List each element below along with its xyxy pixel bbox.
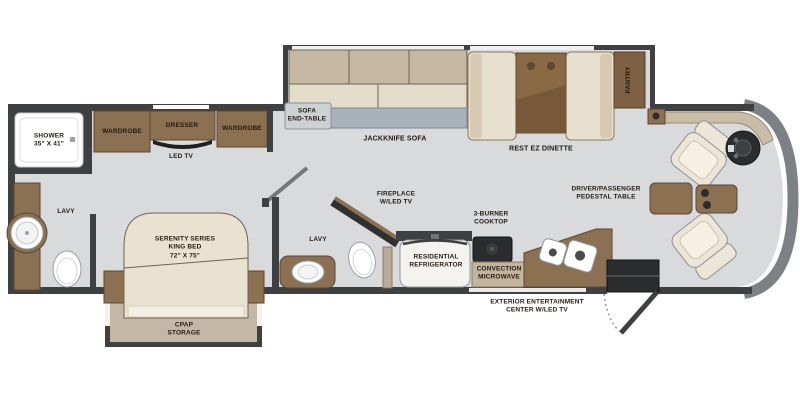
dinette-bench-left-back bbox=[470, 54, 482, 138]
shower-drain bbox=[70, 137, 75, 142]
window-over-dresser bbox=[153, 105, 209, 109]
refrigerator-hinge bbox=[431, 234, 439, 239]
wall-stub-wardrobe bbox=[267, 111, 273, 152]
jackknife-sofa-back bbox=[289, 50, 467, 84]
steering-column-mark bbox=[728, 145, 734, 152]
steering-spoke-1 bbox=[734, 138, 739, 143]
dinette-bench-right-back bbox=[600, 54, 612, 138]
pedestal-table-right bbox=[696, 185, 737, 213]
slideout-top-window-left bbox=[292, 46, 464, 50]
nightstand-right bbox=[246, 271, 264, 303]
wardrobe-left bbox=[94, 111, 150, 152]
floorplan-drawing bbox=[0, 0, 800, 400]
pedestal-table-left bbox=[650, 183, 692, 214]
kitchen-end-panel bbox=[383, 247, 392, 288]
exterior-entertainment-wall-marker bbox=[469, 288, 586, 292]
slideout-top-window-right bbox=[470, 46, 594, 50]
steering-spoke-2 bbox=[734, 154, 739, 159]
refrigerator bbox=[400, 240, 470, 287]
king-bed bbox=[124, 213, 248, 318]
dinette-table-dot-1 bbox=[527, 62, 535, 70]
sofa-end-table bbox=[285, 103, 331, 129]
rear-bath-sink-drain bbox=[25, 231, 29, 235]
cupholder-1 bbox=[701, 189, 709, 197]
dresser bbox=[150, 111, 215, 140]
bed-pillow-strip bbox=[128, 306, 244, 317]
microwave bbox=[472, 262, 527, 287]
entry-door bbox=[621, 292, 657, 333]
bedroom-door-jamb bbox=[262, 198, 269, 207]
cooktop-burner-dot bbox=[490, 247, 494, 251]
nightstand-left bbox=[104, 271, 124, 303]
cab-corner-cabinet-knob bbox=[653, 113, 660, 120]
mid-bath-wall bbox=[272, 197, 279, 293]
bottom-wall-front bbox=[656, 287, 752, 294]
top-wall-front bbox=[652, 104, 754, 111]
rear-bath-wall bbox=[90, 214, 96, 293]
rv-floorplan: SHOWER 35" X 41" WARDROBE DRESSER WARDRO… bbox=[0, 0, 800, 400]
pantry bbox=[614, 52, 645, 108]
cupholder-2 bbox=[703, 201, 711, 209]
entry-door-swing bbox=[604, 294, 619, 331]
dinette-table-dot-2 bbox=[547, 62, 555, 70]
mid-bath-sink-bowl bbox=[298, 265, 318, 279]
steering-wheel-hub bbox=[735, 140, 751, 156]
wardrobe-right bbox=[217, 111, 267, 147]
